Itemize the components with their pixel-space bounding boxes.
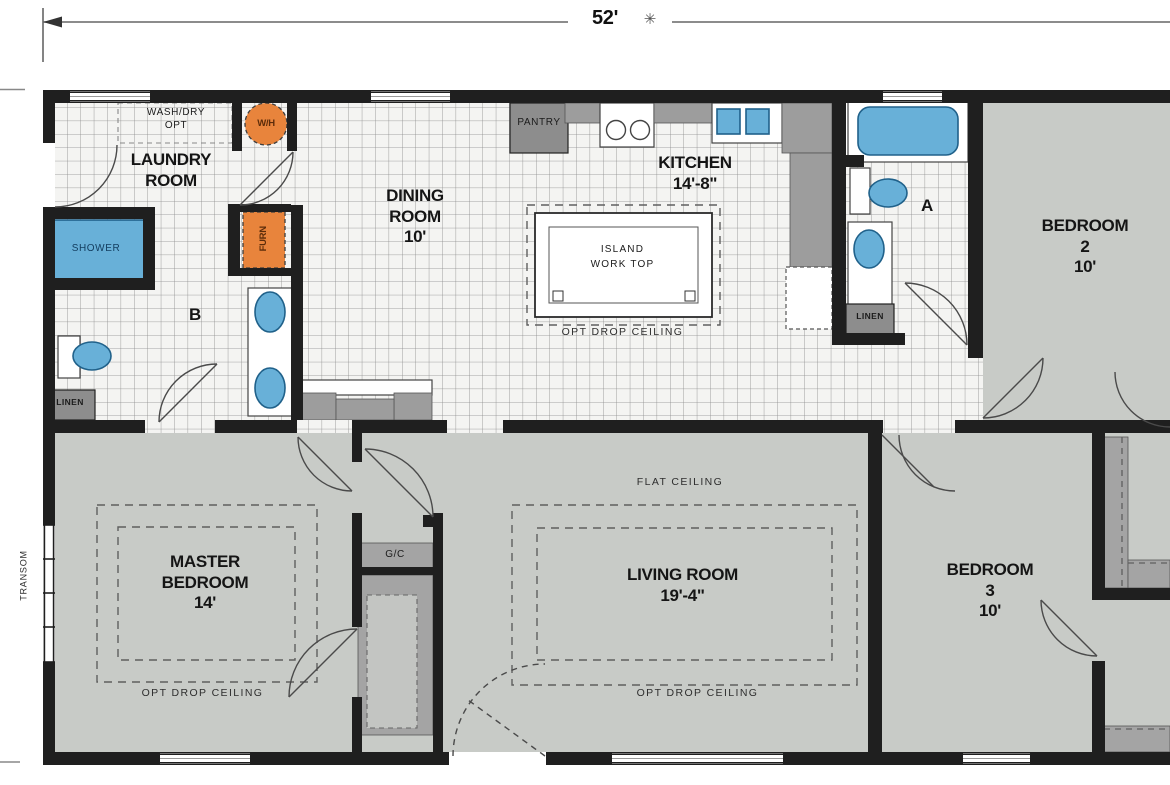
bath-b-toilet — [73, 342, 111, 370]
gc-label: G/C — [365, 549, 425, 561]
bedroom2-label: BEDROOM 2 10' — [1030, 216, 1140, 278]
refrigerator — [786, 267, 832, 329]
laundry-room-label: LAUNDRY ROOM — [96, 150, 246, 191]
transom-label: TRANSOM — [19, 535, 30, 615]
furnace-label: FURN — [258, 209, 270, 269]
bedroom3-label: BEDROOM 3 10' — [935, 560, 1045, 622]
island-worktop-label: ISLAND WORK TOP — [560, 242, 685, 272]
pantry-label: PANTRY — [508, 117, 570, 129]
laundry-door-opening — [43, 143, 55, 207]
water-heater-label: W/H — [246, 118, 286, 130]
bath-a-sink — [869, 179, 907, 207]
bath-b-sink-1 — [255, 292, 285, 332]
dining-room-label: DINING ROOM 10' — [355, 186, 475, 248]
bath-a-label: A — [912, 196, 942, 217]
opt-drop-ceiling-master-label: OPT DROP CEILING — [140, 687, 265, 700]
flat-ceiling-label: FLAT CEILING — [615, 476, 745, 489]
width-dimension-label: 52' — [575, 6, 635, 30]
floorplan-page: 52' ✳ WASH/DRY OPT LAUNDRY ROOM W/H FURN… — [0, 0, 1170, 785]
living-room-label: LIVING ROOM 19'-4" — [600, 565, 765, 606]
linen-b-label: LINEN — [45, 397, 95, 407]
bathtub — [858, 107, 958, 155]
entry-door-opening — [449, 752, 546, 765]
bath-b-sink-2 — [255, 368, 285, 408]
opt-drop-ceiling-kitchen-label: OPT DROP CEILING — [560, 326, 685, 339]
linen-a-label: LINEN — [846, 311, 894, 321]
dimension-marker: ✳ — [638, 11, 662, 29]
opt-drop-ceiling-living-label: OPT DROP CEILING — [635, 687, 760, 700]
shower-label: SHOWER — [48, 243, 144, 255]
master-bedroom-label: MASTER BEDROOM 14' — [130, 552, 280, 614]
washdry-opt-label: WASH/DRY OPT — [120, 107, 232, 132]
kitchen-label: KITCHEN 14'-8" — [625, 153, 765, 194]
bath-b-label: B — [180, 305, 210, 326]
kitchen-sink — [717, 109, 740, 134]
bath-a-toilet — [854, 230, 884, 268]
